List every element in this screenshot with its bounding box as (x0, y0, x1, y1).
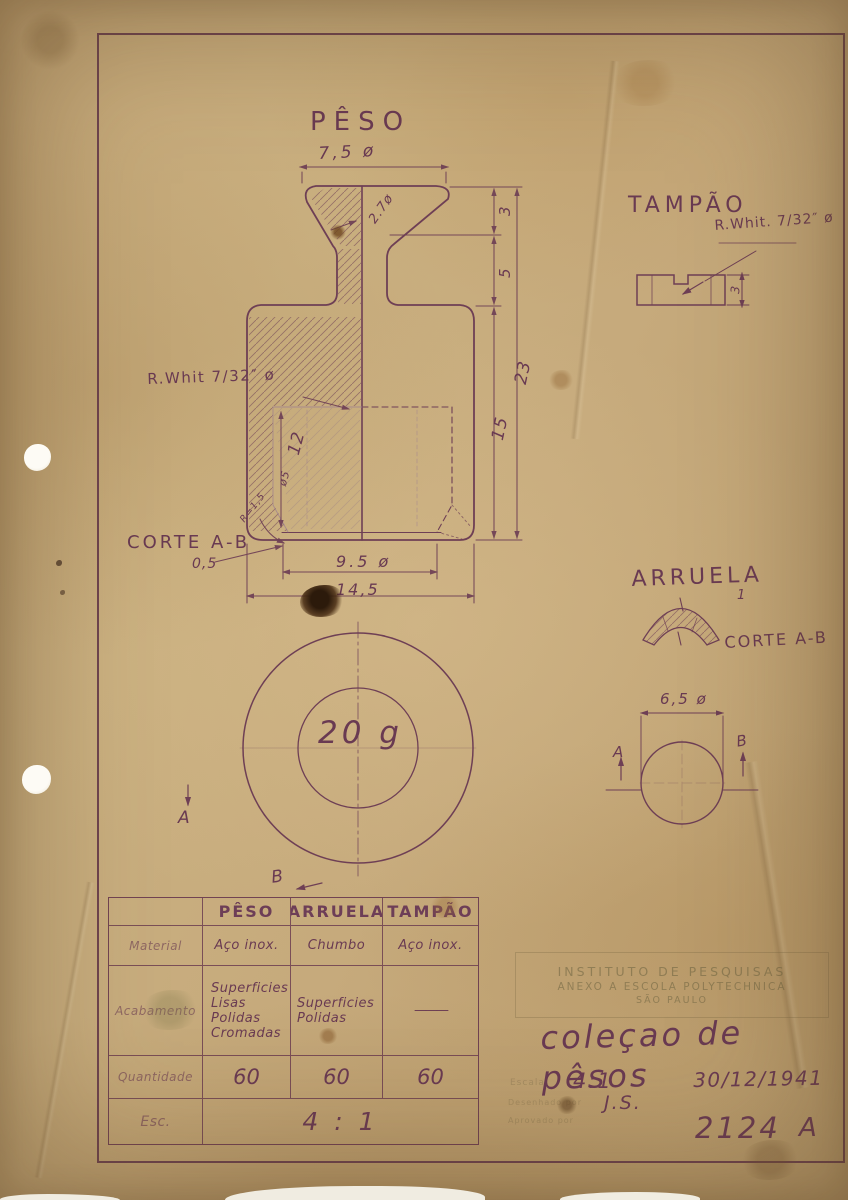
drawing-scale: 4:1 (573, 1068, 613, 1094)
tampao-title: TAMPÃO (628, 192, 748, 220)
peso-cavity-dashed (362, 407, 452, 532)
dim-lip: 0,5 (192, 556, 217, 574)
tampao-leader (705, 251, 756, 281)
scale-value: 4 : 1 (203, 1099, 478, 1144)
peso-corner-dotted (437, 505, 471, 539)
row-label-material: Material (109, 926, 203, 966)
arruela-dim-thickness: 1 (737, 588, 746, 604)
row-label-finish: Acabamento (109, 966, 203, 1056)
section-b-arrow (297, 883, 322, 889)
institute-stamp: INSTITUTO DE PESQUISAS ANEXO A ESCOLA PO… (515, 952, 829, 1018)
form-scale-label: Escala (510, 1078, 545, 1089)
drawing-revision: A (799, 1112, 818, 1145)
dim-opening: 9.5 ø (336, 552, 391, 572)
material-arruela: Chumbo (291, 926, 383, 966)
material-peso: Aço inox. (203, 926, 291, 966)
material-tampao: Aço inox. (383, 926, 478, 966)
tampao-dim-height: 3 (728, 284, 744, 294)
peso-cavity-hatch-light (273, 408, 360, 529)
finish-peso: Superficies Lisas Polidas Cromadas (203, 966, 291, 1056)
form-author-label: Desenhado por (508, 1098, 582, 1108)
section-a-label: A (178, 808, 191, 829)
quantity-peso: 60 (203, 1056, 291, 1099)
table-header-arruela: ARRUELA (291, 898, 383, 926)
finish-tampao: ——— (383, 966, 478, 1056)
peso-title: PÊSO (310, 106, 411, 139)
quantity-arruela: 60 (291, 1056, 383, 1099)
finish-arruela: Superficies Polidas (291, 966, 383, 1056)
drawing-date: 30/12/1941 (693, 1066, 824, 1093)
stamp-line3: SÃO PAULO (636, 995, 708, 1006)
torn-edge (560, 1192, 700, 1200)
arruela-band (643, 609, 719, 646)
row-label-scale: Esc. (109, 1099, 203, 1144)
tampao-outline (637, 275, 725, 305)
arruela-section-a: A (613, 743, 624, 762)
dim-step-height: 5 (496, 267, 515, 278)
dim-base: 14,5 (336, 580, 380, 600)
drawing-number: 2124 (695, 1110, 781, 1146)
tampao-inner-lines (652, 275, 711, 305)
parts-table: PÊSO ARRUELA TAMPÃO Material Aço inox. C… (108, 897, 479, 1145)
dim-cap-height: 3 (496, 205, 515, 216)
dim-top-diameter: 7,5 ø (318, 141, 377, 165)
table-header-peso: PÊSO (203, 898, 291, 926)
arruela-centerlines (640, 740, 725, 828)
table-header-tampao: TAMPÃO (383, 898, 478, 926)
row-label-quantity: Quantidade (109, 1056, 203, 1099)
stamp-line2: ANEXO A ESCOLA POLYTECHNICA (557, 981, 786, 993)
drawing-author: J.S. (604, 1092, 642, 1116)
section-label-main: CORTE A-B (127, 532, 250, 555)
quantity-tampao: 60 (383, 1056, 478, 1099)
table-corner-cell (109, 898, 203, 926)
stamp-line1: INSTITUTO DE PESQUISAS (558, 964, 787, 979)
arruela-dim-diameter: 6,5 ø (660, 690, 708, 709)
form-approved-label: Aprovado por (508, 1116, 574, 1126)
mass-label: 20 g (318, 714, 403, 753)
